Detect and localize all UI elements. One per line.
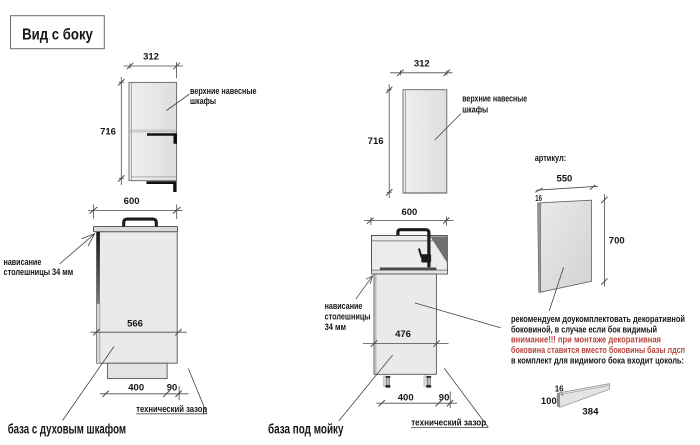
svg-text:внимание!!! при монтаже декора: внимание!!! при монтаже декоративная [511,335,661,345]
svg-text:нависание: нависание [325,301,363,311]
svg-text:шкафы: шкафы [190,96,216,106]
svg-text:700: 700 [609,235,625,246]
svg-text:артикул:: артикул: [535,153,567,164]
svg-text:боковина ставится вместо боков: боковина ставится вместо боковины базы л… [511,345,685,355]
svg-text:566: 566 [127,319,143,330]
svg-text:90: 90 [439,392,450,403]
svg-text:90: 90 [167,383,178,394]
svg-text:16: 16 [535,194,542,203]
svg-text:400: 400 [128,383,144,394]
svg-text:база с духовым шкафом: база с духовым шкафом [8,422,126,437]
svg-text:600: 600 [124,196,140,207]
svg-text:столешницы: столешницы [325,311,371,321]
svg-text:технический зазор: технический зазор [136,404,207,414]
svg-text:312: 312 [143,52,159,63]
svg-text:100: 100 [541,396,557,407]
svg-text:столешницы 34 мм: столешницы 34 мм [4,267,74,277]
svg-text:716: 716 [100,127,116,138]
svg-text:база под мойку: база под мойку [268,422,344,437]
svg-text:550: 550 [556,173,572,184]
svg-text:боковиной, в случае если бок в: боковиной, в случае если бок видимый [511,324,657,334]
svg-text:рекомендуем доукомплектовать д: рекомендуем доукомплектовать декоративно… [511,314,685,324]
svg-text:34 мм: 34 мм [325,322,347,332]
svg-text:шкафы: шкафы [462,104,488,114]
svg-text:600: 600 [401,207,417,218]
svg-text:в комплект для видимого бока в: в комплект для видимого бока входит цоко… [511,355,684,365]
svg-text:716: 716 [368,136,384,147]
svg-text:технический зазор: технический зазор [411,418,486,428]
svg-text:312: 312 [414,58,430,69]
svg-text:нависание: нависание [4,257,42,267]
svg-text:476: 476 [395,329,411,340]
svg-text:400: 400 [398,392,414,403]
svg-text:16: 16 [555,384,564,393]
svg-text:верхние навесные: верхние навесные [462,94,527,104]
svg-text:Вид с боку: Вид с боку [22,26,93,43]
svg-text:верхние навесные: верхние навесные [190,86,257,96]
svg-text:384: 384 [582,406,599,417]
